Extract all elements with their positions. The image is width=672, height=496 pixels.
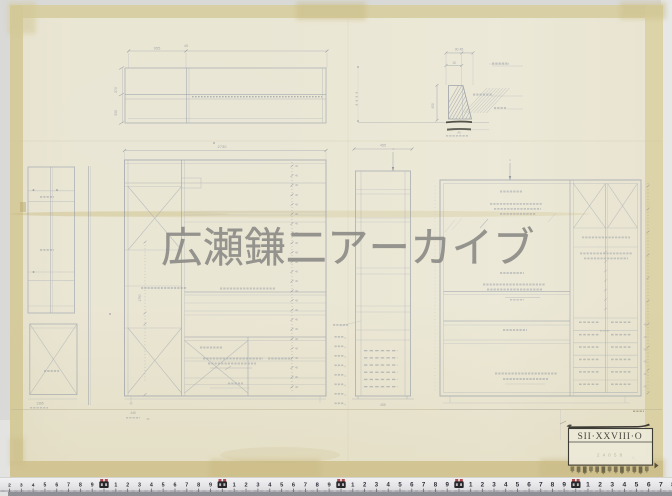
svg-text:4: 4 xyxy=(150,482,153,488)
svg-text:8: 8 xyxy=(197,482,200,488)
svg-text:3: 3 xyxy=(610,481,614,488)
svg-text:9: 9 xyxy=(91,482,94,488)
svg-text:SII·XXVIII·O: SII·XXVIII·O xyxy=(577,431,642,442)
svg-text:7: 7 xyxy=(539,481,543,488)
svg-text:455: 455 xyxy=(380,144,386,148)
svg-text:40: 40 xyxy=(295,385,299,389)
svg-text:1: 1 xyxy=(586,481,590,488)
svg-text:330: 330 xyxy=(114,110,118,116)
svg-text:6: 6 xyxy=(55,482,58,488)
svg-text:1: 1 xyxy=(469,481,473,488)
svg-text:8: 8 xyxy=(551,481,555,488)
svg-text:3: 3 xyxy=(138,482,141,488)
svg-text:40: 40 xyxy=(295,222,299,226)
svg-text:2: 2 xyxy=(598,481,602,488)
svg-text:6: 6 xyxy=(527,481,531,488)
svg-text:2: 2 xyxy=(8,482,11,488)
svg-text:40: 40 xyxy=(295,327,299,331)
svg-text:45: 45 xyxy=(129,402,133,406)
svg-text:40: 40 xyxy=(295,250,299,254)
svg-text:40: 40 xyxy=(295,164,299,168)
svg-text:5: 5 xyxy=(516,481,520,488)
svg-text:1790: 1790 xyxy=(138,294,142,302)
svg-text:40: 40 xyxy=(295,193,299,197)
svg-text:7: 7 xyxy=(67,482,70,488)
svg-text:40: 40 xyxy=(295,366,299,370)
svg-text:40: 40 xyxy=(295,318,299,322)
svg-text:455: 455 xyxy=(380,403,386,407)
svg-text:6: 6 xyxy=(173,482,176,488)
svg-text:4: 4 xyxy=(623,481,627,488)
svg-text:5: 5 xyxy=(280,482,283,488)
svg-text:370: 370 xyxy=(114,87,118,93)
svg-text:40: 40 xyxy=(295,212,299,216)
svg-text:40: 40 xyxy=(295,308,299,312)
svg-text:5: 5 xyxy=(635,481,639,488)
svg-text:3: 3 xyxy=(20,482,23,488)
svg-text:4: 4 xyxy=(32,482,35,488)
svg-text:40: 40 xyxy=(295,289,299,293)
svg-text:1: 1 xyxy=(114,482,117,488)
svg-text:2: 2 xyxy=(126,482,129,488)
svg-text:40: 40 xyxy=(295,183,299,187)
svg-text:5: 5 xyxy=(44,482,47,488)
svg-text:40: 40 xyxy=(295,337,299,341)
svg-text:30.45: 30.45 xyxy=(455,48,464,52)
svg-text:40: 40 xyxy=(295,241,299,245)
svg-text:9: 9 xyxy=(562,481,566,488)
svg-text:2730: 2730 xyxy=(218,144,228,149)
svg-text:40: 40 xyxy=(295,174,299,178)
svg-text:40: 40 xyxy=(295,298,299,302)
svg-text:3: 3 xyxy=(256,482,259,488)
svg-text:40: 40 xyxy=(295,202,299,206)
svg-text:40: 40 xyxy=(295,270,299,274)
svg-text:2: 2 xyxy=(244,482,247,488)
svg-text:2: 2 xyxy=(481,481,485,488)
svg-text:40: 40 xyxy=(295,346,299,350)
svg-text:40: 40 xyxy=(295,356,299,360)
svg-text:955: 955 xyxy=(154,46,161,51)
svg-text:9: 9 xyxy=(209,482,212,488)
svg-text:45: 45 xyxy=(184,44,188,48)
svg-text:8: 8 xyxy=(79,482,82,488)
svg-text:4: 4 xyxy=(504,481,508,488)
svg-text:1365: 1365 xyxy=(36,402,44,406)
svg-text:6: 6 xyxy=(292,482,295,488)
svg-text:8: 8 xyxy=(434,481,438,488)
svg-text:2 4 0 5 8: 2 4 0 5 8 xyxy=(597,453,623,458)
svg-text:15: 15 xyxy=(452,61,456,65)
svg-text:7: 7 xyxy=(659,481,663,488)
svg-text:6: 6 xyxy=(647,481,651,488)
svg-text:1: 1 xyxy=(233,482,236,488)
svg-text:40: 40 xyxy=(295,375,299,379)
svg-text:7: 7 xyxy=(304,482,307,488)
svg-text:445: 445 xyxy=(130,411,136,415)
svg-text:3: 3 xyxy=(492,481,496,488)
svg-text:9: 9 xyxy=(445,481,449,488)
svg-text:45: 45 xyxy=(146,417,150,421)
svg-text:450: 450 xyxy=(431,103,435,109)
svg-text:45: 45 xyxy=(457,131,461,135)
svg-text:7: 7 xyxy=(185,482,188,488)
svg-text:/ ,: / , xyxy=(632,455,635,460)
svg-text:5: 5 xyxy=(162,482,165,488)
svg-text:40: 40 xyxy=(295,279,299,283)
